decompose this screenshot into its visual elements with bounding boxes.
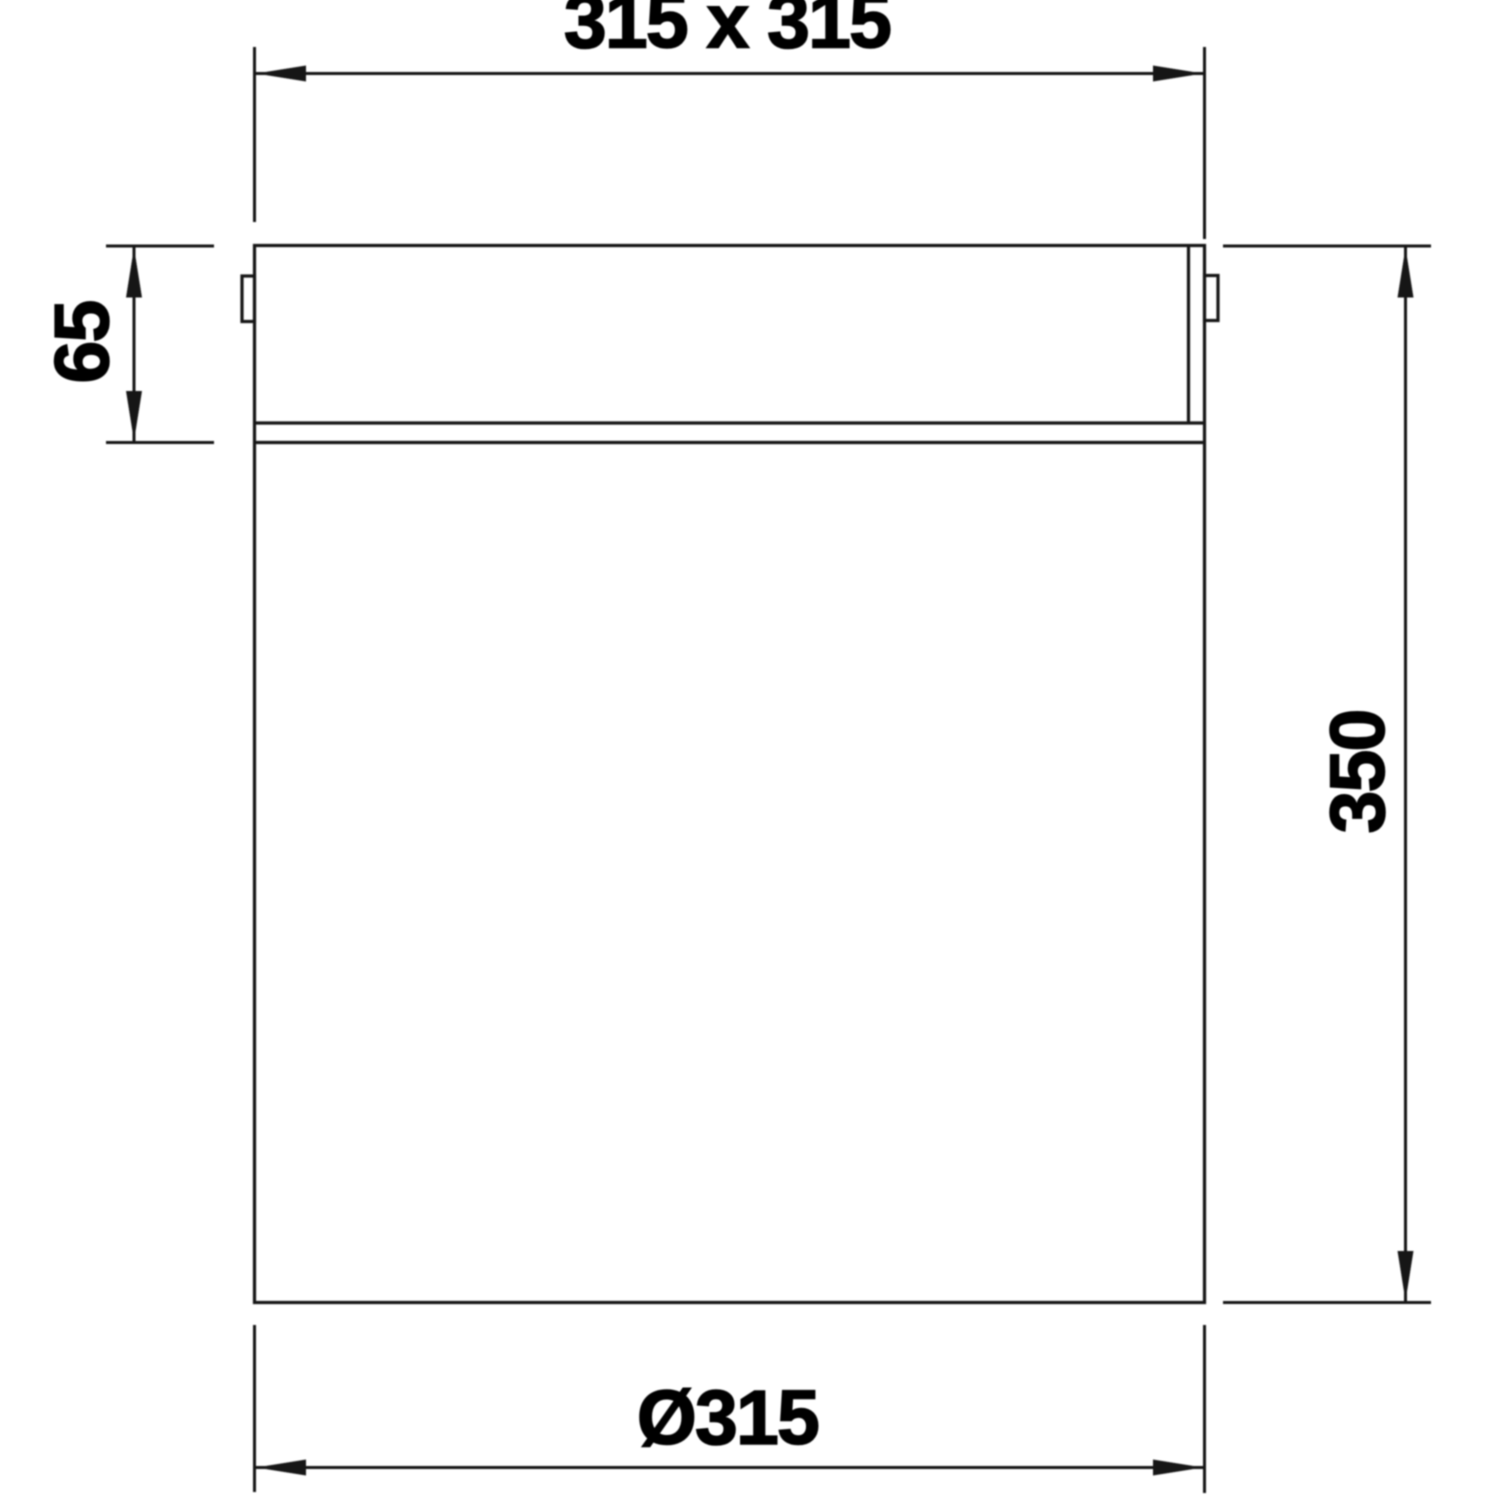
svg-text:315 x 315: 315 x 315 <box>564 0 890 65</box>
svg-text:350: 350 <box>1315 710 1401 833</box>
svg-text:Ø315: Ø315 <box>637 1375 818 1461</box>
svg-text:65: 65 <box>40 301 126 383</box>
